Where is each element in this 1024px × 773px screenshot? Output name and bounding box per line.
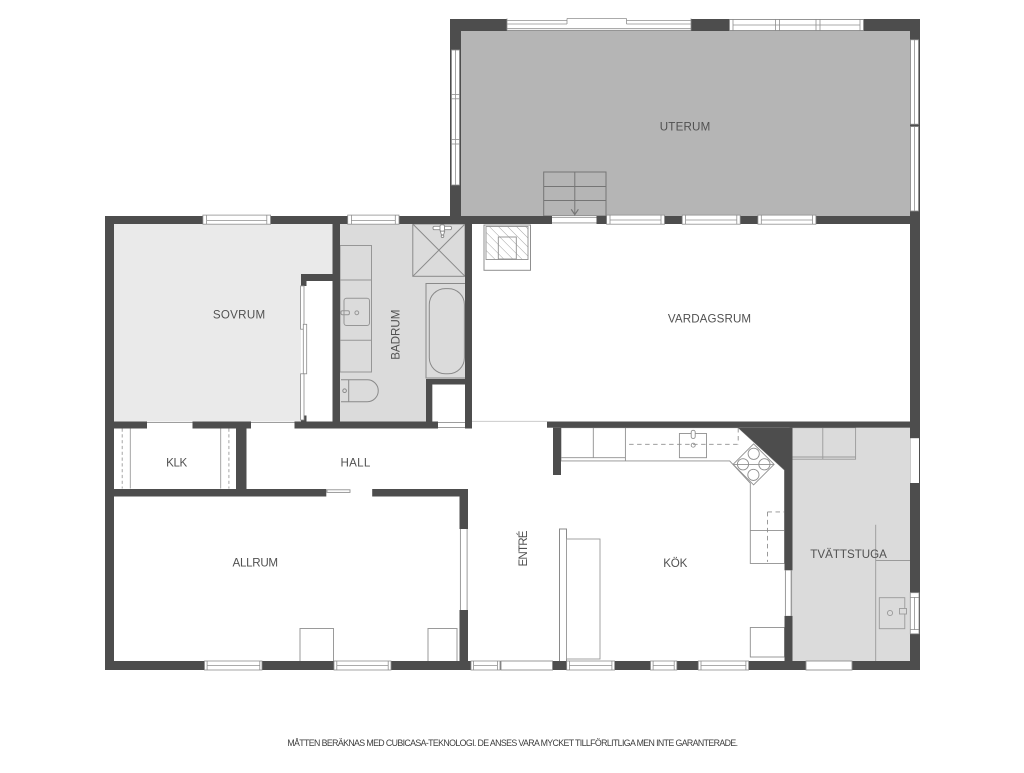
svg-text:SOVRUM: SOVRUM — [213, 308, 265, 321]
svg-text:UTERUM: UTERUM — [660, 121, 711, 134]
svg-text:TVÄTTSTUGA: TVÄTTSTUGA — [810, 548, 887, 561]
svg-text:ALLRUM: ALLRUM — [233, 557, 278, 570]
svg-text:VARDAGSRUM: VARDAGSRUM — [668, 312, 751, 325]
svg-text:MÅTTEN BERÄKNAS MED CUBICASA-T: MÅTTEN BERÄKNAS MED CUBICASA-TEKNOLOGI. … — [287, 738, 738, 748]
svg-text:HALL: HALL — [341, 457, 371, 470]
svg-text:BADRUM: BADRUM — [390, 310, 403, 360]
svg-text:ENTRÉ: ENTRÉ — [517, 530, 530, 566]
svg-text:KÖK: KÖK — [663, 557, 687, 570]
svg-text:KLK: KLK — [166, 457, 187, 470]
